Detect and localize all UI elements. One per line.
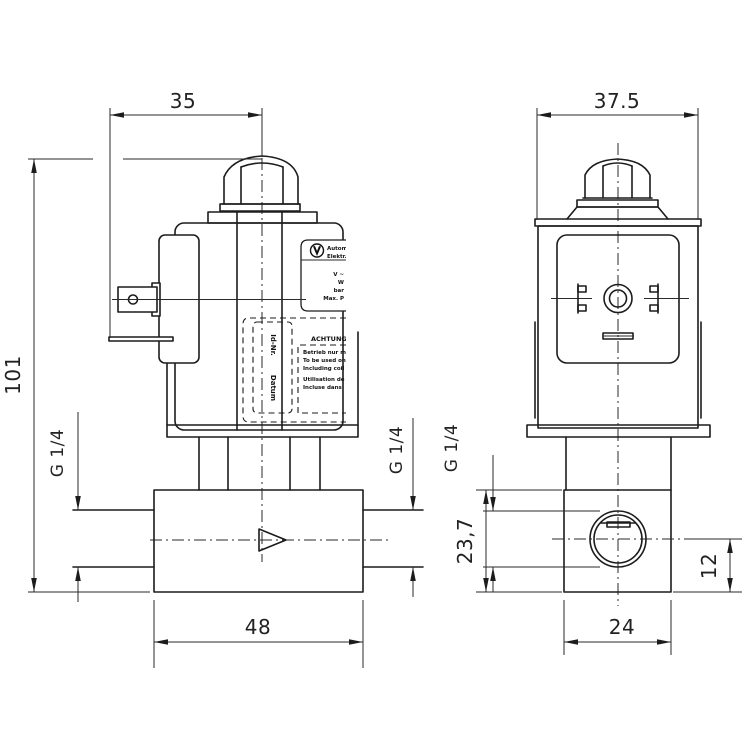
valve-body-front — [73, 490, 423, 592]
warning-line-5: Incluse dans — [303, 385, 343, 391]
dim-g14-side: G 1/4 — [442, 424, 600, 592]
dim-g14-left-text: G 1/4 — [48, 429, 68, 477]
dim-101-text: 101 — [1, 355, 25, 395]
din-connector-face — [551, 235, 689, 363]
dim-g14-left: G 1/4 — [48, 412, 78, 602]
warning-line-2: To be used only — [303, 358, 352, 364]
dim-37-5-text: 37.5 — [594, 89, 641, 113]
front-view: Autom. Elektr. V ~ W bar Max. P Id-Nr. D… — [1, 89, 423, 668]
warning-line-3: Including coil — [303, 366, 345, 372]
spec-line-2: W — [338, 280, 344, 286]
dim-12-text: 12 — [697, 553, 721, 579]
spec-line-3: bar — [334, 288, 345, 294]
dim-g14-right: G 1/4 — [387, 418, 413, 597]
dim-g14-right-text: G 1/4 — [387, 426, 407, 474]
valve-drawing: Autom. Elektr. V ~ W bar Max. P Id-Nr. D… — [0, 0, 750, 750]
dim-23-7-text: 23,7 — [453, 518, 477, 565]
dim-101: 101 — [1, 159, 262, 592]
brand-line1: Autom. — [327, 246, 349, 252]
side-view: 37.5 23,7 G 1/4 12 24 — [442, 89, 742, 655]
drawing-page: Autom. Elektr. V ~ W bar Max. P Id-Nr. D… — [0, 0, 750, 750]
warning-line-1: Betrieb nur mit — [303, 350, 351, 356]
dim-12: 12 — [673, 539, 742, 592]
dim-48: 48 — [154, 600, 363, 668]
dim-48-text: 48 — [245, 615, 271, 639]
mounting-bracket — [109, 337, 173, 341]
hex-nut-front — [222, 156, 300, 204]
dim-23-7: 23,7 — [453, 490, 562, 592]
dim-35-text: 35 — [170, 89, 196, 113]
dim-24-text: 24 — [609, 615, 635, 639]
date-label: Datum — [269, 375, 277, 401]
spec-line-4: Max. P — [323, 296, 344, 302]
ground-slot — [603, 333, 633, 339]
nameplate: Autom. Elektr. V ~ W bar Max. P Id-Nr. D… — [243, 240, 352, 422]
spec-line-1: V ~ — [333, 272, 344, 278]
warning-title: ACHTUNG — [311, 335, 347, 343]
brand-line2: Elektr. — [327, 254, 347, 260]
warning-line-4: Utilisation de la — [303, 377, 352, 383]
dim-24: 24 — [564, 600, 671, 655]
id-number-label: Id-Nr. — [269, 334, 277, 356]
valve-stems-front — [199, 437, 320, 490]
dim-g14-side-text: G 1/4 — [442, 424, 462, 472]
valve-body-side — [552, 490, 688, 592]
